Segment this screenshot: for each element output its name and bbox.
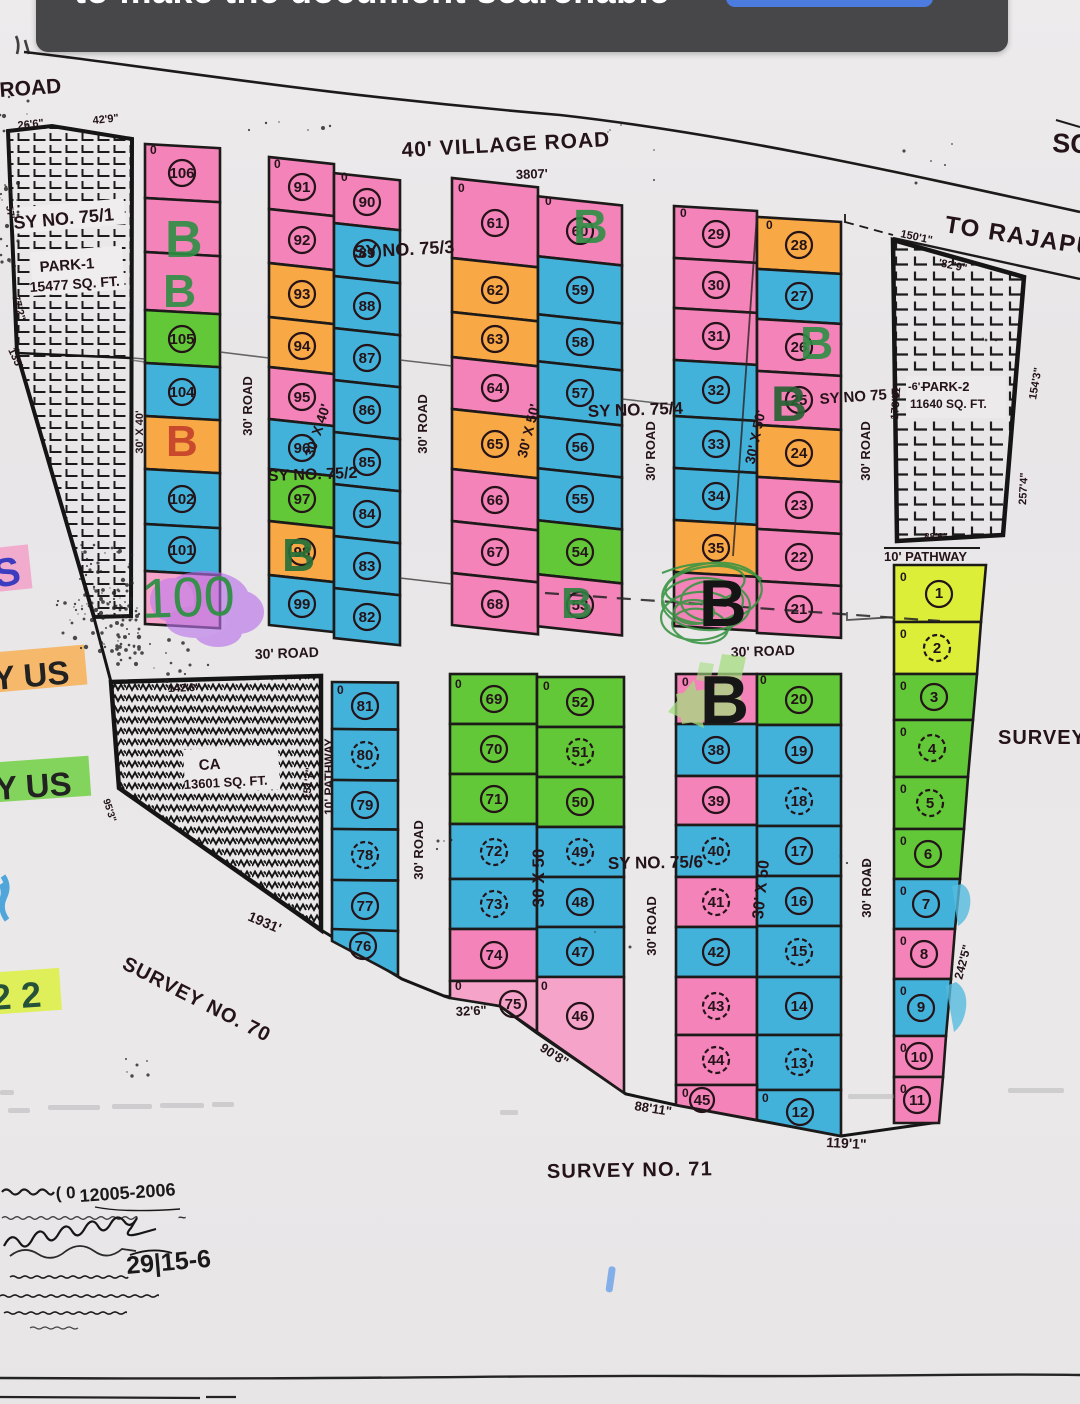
svg-text:39: 39 (708, 793, 725, 810)
svg-text:30 X 50: 30 X 50 (529, 849, 548, 908)
svg-text:0: 0 (900, 1041, 907, 1055)
svg-text:6: 6 (924, 846, 932, 863)
svg-text:B: B (699, 566, 747, 640)
svg-text:99: 99 (294, 596, 311, 613)
svg-text:97: 97 (294, 491, 311, 508)
svg-text:81: 81 (357, 698, 374, 715)
svg-text:45: 45 (694, 1092, 711, 1109)
svg-text:0: 0 (150, 143, 157, 157)
svg-text:24: 24 (791, 445, 808, 462)
svg-text:B: B (165, 211, 203, 269)
svg-text:B: B (166, 417, 198, 466)
svg-text:30' ROAD: 30' ROAD (240, 376, 255, 435)
svg-text:94: 94 (294, 338, 311, 355)
svg-text:10' PATHWAY: 10' PATHWAY (884, 549, 967, 564)
svg-text:64: 64 (487, 380, 504, 397)
svg-text:31: 31 (708, 328, 725, 345)
svg-text:42: 42 (708, 944, 725, 961)
svg-text:0: 0 (900, 627, 907, 641)
svg-text:69: 69 (486, 691, 503, 708)
svg-text:~: ~ (178, 1209, 186, 1225)
svg-text:34: 34 (708, 488, 725, 505)
svg-text:95: 95 (294, 389, 311, 406)
svg-text:11640 SQ. FT.: 11640 SQ. FT. (910, 397, 987, 411)
svg-text:29: 29 (708, 226, 725, 243)
svg-text:79: 79 (357, 797, 374, 814)
svg-text:82: 82 (359, 609, 376, 626)
svg-text:38: 38 (708, 742, 725, 759)
svg-text:22: 22 (791, 549, 808, 566)
svg-text:65: 65 (487, 436, 504, 453)
svg-text:0: 0 (274, 157, 281, 171)
svg-text:19: 19 (791, 743, 808, 760)
svg-text:68: 68 (487, 596, 504, 613)
svg-text:61: 61 (487, 215, 504, 232)
svg-text:47: 47 (572, 944, 589, 961)
svg-text:33: 33 (708, 436, 725, 453)
svg-text:9: 9 (917, 999, 925, 1016)
svg-text:91: 91 (294, 179, 311, 196)
svg-text:PARK-2: PARK-2 (922, 379, 969, 394)
svg-text:90: 90 (359, 194, 376, 211)
svg-text:SY NO. 75/4: SY NO. 75/4 (587, 399, 683, 421)
svg-text:92: 92 (294, 232, 311, 249)
svg-text:B: B (800, 317, 833, 369)
svg-text:93: 93 (294, 286, 311, 303)
svg-text:0: 0 (900, 725, 907, 739)
svg-text:75: 75 (505, 996, 522, 1013)
svg-text:3: 3 (930, 689, 938, 706)
svg-text:30: 30 (708, 277, 725, 294)
svg-text:0: 0 (900, 1082, 907, 1096)
svg-text:73: 73 (486, 896, 503, 913)
svg-text:0: 0 (545, 194, 552, 208)
svg-text:76: 76 (355, 938, 372, 955)
svg-text:14: 14 (791, 998, 808, 1015)
svg-text:0: 0 (762, 1091, 769, 1105)
svg-text:257'4": 257'4" (1017, 472, 1031, 505)
svg-text:0: 0 (455, 677, 462, 691)
svg-text:41: 41 (708, 894, 725, 911)
svg-text:B: B (561, 579, 593, 628)
svg-text:27: 27 (791, 288, 808, 305)
svg-text:30' ROAD: 30' ROAD (644, 896, 659, 955)
svg-text:30' ROAD: 30' ROAD (858, 421, 873, 480)
svg-text:59: 59 (572, 282, 589, 299)
svg-text:88: 88 (359, 298, 376, 315)
svg-text:44: 44 (708, 1052, 725, 1069)
svg-text:106: 106 (169, 165, 194, 182)
svg-text:40: 40 (708, 843, 725, 860)
svg-text:100: 100 (140, 564, 236, 630)
svg-text:8: 8 (920, 946, 928, 963)
svg-text:0: 0 (900, 834, 907, 848)
svg-text:50: 50 (572, 794, 589, 811)
svg-text:57': 57' (3, 205, 16, 220)
svg-text:58: 58 (572, 334, 589, 351)
svg-text:2 2: 2 2 (0, 974, 42, 1018)
svg-text:48: 48 (572, 894, 589, 911)
svg-text:88'6": 88'6" (924, 532, 948, 543)
svg-text:7: 7 (922, 896, 930, 913)
svg-text:52: 52 (572, 694, 589, 711)
svg-text:101: 101 (169, 542, 194, 559)
svg-text:SURVEY: SURVEY (998, 727, 1080, 749)
svg-text:57: 57 (572, 385, 589, 402)
svg-text:0: 0 (900, 679, 907, 693)
svg-text:5: 5 (926, 795, 934, 812)
svg-text:30' ROAD: 30' ROAD (643, 421, 658, 480)
svg-text:104: 104 (169, 384, 195, 401)
svg-text:18: 18 (791, 793, 808, 810)
svg-text:105: 105 (169, 331, 194, 348)
svg-text:85: 85 (359, 454, 376, 471)
svg-text:0: 0 (458, 181, 465, 195)
svg-text:3807': 3807' (516, 166, 549, 182)
svg-text:11: 11 (909, 1092, 925, 1109)
svg-text:B: B (282, 529, 315, 581)
svg-text:SY NO. 75/6: SY NO. 75/6 (608, 852, 703, 873)
svg-text:10' PATHWAY: 10' PATHWAY (322, 738, 336, 815)
svg-text:71: 71 (486, 791, 503, 808)
svg-text:0: 0 (900, 934, 907, 948)
svg-text:102: 102 (169, 491, 194, 508)
svg-text:30' ROAD: 30' ROAD (859, 858, 874, 917)
svg-text:56: 56 (572, 439, 589, 456)
svg-text:43: 43 (708, 998, 725, 1015)
svg-text:17: 17 (791, 843, 808, 860)
svg-text:0: 0 (543, 679, 550, 693)
svg-text:28: 28 (791, 237, 808, 254)
svg-text:30' ROAD: 30' ROAD (415, 394, 430, 453)
svg-text:0: 0 (337, 683, 344, 697)
svg-text:55: 55 (572, 491, 589, 508)
svg-text:0: 0 (900, 782, 907, 796)
svg-text:12: 12 (792, 1104, 809, 1121)
svg-text:80: 80 (357, 747, 374, 764)
svg-text:66: 66 (487, 492, 504, 509)
svg-text:51: 51 (572, 744, 589, 761)
svg-text:32'6": 32'6" (455, 1002, 487, 1019)
svg-text:SC: SC (1052, 128, 1080, 159)
svg-text:0: 0 (541, 979, 548, 993)
svg-text:B: B (771, 376, 807, 432)
svg-text:B: B (700, 662, 749, 738)
svg-text:0: 0 (760, 673, 767, 687)
svg-text:49: 49 (572, 844, 589, 861)
svg-text:B: B (573, 201, 608, 254)
svg-text:23: 23 (791, 497, 808, 514)
svg-text:30' ROAD: 30' ROAD (255, 644, 320, 662)
svg-text:13: 13 (791, 1055, 808, 1072)
svg-text:0: 0 (680, 206, 687, 220)
svg-text:35: 35 (708, 540, 725, 557)
svg-text:30' X 40': 30' X 40' (134, 410, 146, 454)
svg-text:SURVEY NO. 71: SURVEY NO. 71 (547, 1158, 713, 1183)
svg-text:70: 70 (486, 741, 503, 758)
svg-text:16: 16 (791, 893, 808, 910)
svg-text:10: 10 (911, 1049, 928, 1066)
svg-text:63: 63 (487, 331, 504, 348)
svg-text:( 0: ( 0 (55, 1183, 76, 1203)
svg-text:0: 0 (682, 675, 689, 689)
svg-text:77: 77 (357, 898, 374, 915)
svg-text:SY NO. 75/2: SY NO. 75/2 (268, 465, 358, 485)
svg-text:119'1": 119'1" (826, 1134, 867, 1152)
svg-text:CA: CA (198, 756, 221, 774)
svg-text:0: 0 (341, 170, 348, 184)
svg-text:32: 32 (708, 382, 725, 399)
svg-text:20: 20 (791, 691, 808, 708)
svg-text:84: 84 (359, 506, 376, 523)
svg-text:74: 74 (486, 947, 503, 964)
svg-text:4: 4 (928, 741, 937, 758)
svg-text:142'6": 142'6" (168, 682, 201, 695)
svg-text:54: 54 (572, 544, 589, 561)
svg-text:86: 86 (359, 402, 376, 419)
svg-text:46: 46 (572, 1008, 589, 1025)
svg-text:15: 15 (791, 943, 808, 960)
svg-text:2: 2 (933, 640, 941, 657)
svg-text:0: 0 (766, 218, 773, 232)
svg-text:83: 83 (359, 558, 376, 575)
svg-text:1: 1 (935, 585, 943, 602)
svg-text:0: 0 (900, 570, 907, 584)
svg-text:62: 62 (487, 282, 504, 299)
svg-text:Y US: Y US (0, 765, 73, 807)
svg-text:Y US: Y US (0, 653, 71, 697)
svg-text:30' ROAD: 30' ROAD (411, 820, 426, 879)
svg-text:0: 0 (455, 979, 462, 993)
svg-text:B: B (163, 265, 196, 317)
svg-text:0: 0 (900, 984, 907, 998)
svg-text:72: 72 (486, 843, 503, 860)
svg-text:0: 0 (900, 884, 907, 898)
svg-text:0: 0 (682, 1086, 689, 1100)
svg-text:67: 67 (487, 544, 504, 561)
svg-text:87: 87 (359, 350, 376, 367)
svg-text:78: 78 (357, 847, 374, 864)
